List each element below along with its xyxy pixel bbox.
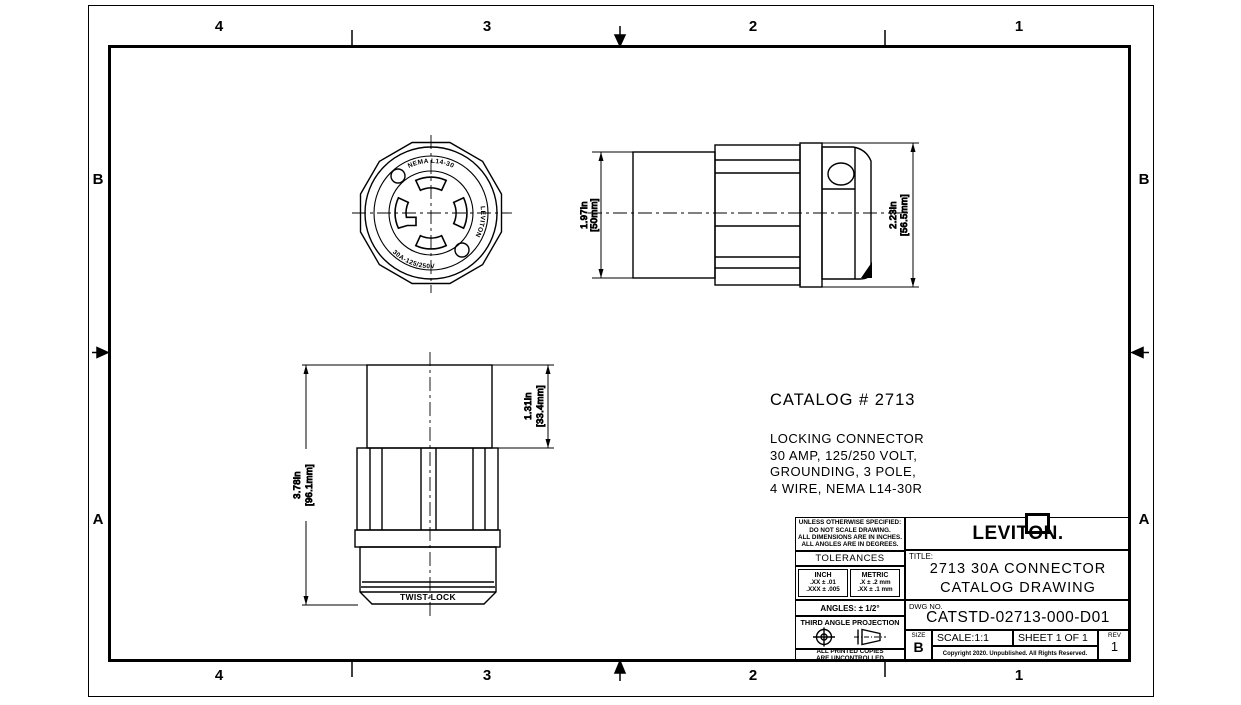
dim-cord-sleeve-length-in: 1.31in <box>523 392 534 420</box>
angles-cell: ANGLES: ± 1/2° <box>795 600 905 616</box>
third-angle-projection-icon <box>796 627 903 648</box>
tolerances-header-cell: TOLERANCES <box>795 551 905 566</box>
copyright-cell: Copyright 2020. Unpublished. All Rights … <box>932 646 1098 662</box>
face-hole-upper <box>391 169 405 183</box>
catalog-description: LOCKING CONNECTOR 30 AMP, 125/250 VOLT, … <box>770 431 924 497</box>
center-arrow-right <box>1132 348 1143 358</box>
center-arrow-bottom <box>615 661 625 673</box>
dwg-no-label: DWG NO. <box>909 602 943 611</box>
title-cell: TITLE: 2713 30A CONNECTOR CATALOG DRAWIN… <box>905 550 1131 600</box>
projection-label: THIRD ANGLE PROJECTION <box>796 618 904 627</box>
dim-overall-length-in: 3.78in <box>292 471 303 499</box>
note-line: DO NOT SCALE DRAWING. <box>809 527 891 534</box>
size-value: B <box>906 639 931 655</box>
dim-overall-od-in: 2.23in <box>888 201 899 229</box>
dwg-no-value: CATSTD-02713-000-D01 <box>906 609 1130 627</box>
metric-row: .XX ± .1 mm <box>857 586 892 593</box>
size-label: SIZE <box>906 632 931 639</box>
dim-cord-sleeve-length-mm: [33.4mm] <box>535 385 546 427</box>
dim-overall-length: 3.78in [96.1mm] <box>292 365 367 605</box>
side-cord-sleeve <box>633 152 715 278</box>
catalog-heading: CATALOG # 2713 <box>770 391 924 410</box>
sheet-cell: SHEET 1 OF 1 <box>1013 630 1098 646</box>
dim-overall-od-mm: [56.5mm] <box>899 194 910 236</box>
center-arrow-left <box>97 348 108 358</box>
side-flange <box>800 143 822 287</box>
metric-header: METRIC <box>862 572 889 579</box>
body-marking-text: TWIST-LOCK <box>400 592 456 602</box>
bottom-ribbed-body <box>357 448 498 530</box>
inch-row: .XX ± .01 <box>810 579 836 586</box>
bottom-cord-sleeve <box>367 365 492 448</box>
leviton-logo: LEVITON. <box>972 523 1063 545</box>
rev-cell: REV 1 <box>1098 630 1131 662</box>
dim-overall-length-mm: [96.1mm] <box>304 464 315 506</box>
side-view: 1.97in [50mm] 2.23in [56.5mm] <box>579 143 919 287</box>
projection-cell: THIRD ANGLE PROJECTION <box>795 616 905 649</box>
catalog-description-line: GROUNDING, 3 POLE, <box>770 464 924 481</box>
note-line: ALL ANGLES ARE IN DEGREES. <box>801 541 898 548</box>
catalog-description-line: 4 WIRE, NEMA L14-30R <box>770 481 924 498</box>
size-cell: SIZE B <box>905 630 932 662</box>
front-view: NEMA L14-30 LEVITON 30A-125/250V <box>352 135 512 293</box>
bottom-flange <box>355 530 500 547</box>
drawing-sheet: 4 3 2 1 4 3 2 1 B A B A <box>0 0 1241 705</box>
dim-sleeve-od: 1.97in [50mm] <box>579 152 633 278</box>
title-line-1: 2713 30A CONNECTOR <box>906 560 1130 579</box>
title-line-2: CATALOG DRAWING <box>906 579 1130 598</box>
notes-cell: UNLESS OTHERWISE SPECIFIED: DO NOT SCALE… <box>795 517 905 551</box>
dim-cord-sleeve-length: 1.31in [33.4mm] <box>492 365 554 448</box>
title-label: TITLE: <box>909 552 933 561</box>
catalog-block: CATALOG # 2713 LOCKING CONNECTOR 30 AMP,… <box>770 391 924 497</box>
logo-cell: LEVITON. <box>905 517 1131 550</box>
metric-row: .X ± .2 mm <box>859 579 890 586</box>
metric-tolerance-box: METRIC .X ± .2 mm .XX ± .1 mm <box>850 569 900 597</box>
note-line: ALL DIMENSIONS ARE IN INCHES. <box>798 534 902 541</box>
center-arrow-top <box>615 35 625 46</box>
drawing-title: 2713 30A CONNECTOR CATALOG DRAWING <box>906 560 1130 598</box>
dim-sleeve-od-mm: [50mm] <box>589 198 600 231</box>
inch-row: .XXX ± .005 <box>806 586 840 593</box>
inch-header: INCH <box>814 572 831 579</box>
tolerances-body-cell: INCH .XX ± .01 .XXX ± .005 METRIC .X ± .… <box>795 566 905 600</box>
side-face-hole <box>828 163 854 185</box>
face-marking-bottom: 30A-125/250V <box>391 249 435 270</box>
uncontrolled-cell: ALL PRINTED COPIES ARE UNCONTROLLED <box>795 649 905 662</box>
dwg-no-cell: DWG NO. CATSTD-02713-000-D01 <box>905 600 1131 630</box>
catalog-description-line: LOCKING CONNECTOR <box>770 431 924 448</box>
rev-label: REV <box>1099 632 1130 639</box>
leviton-logo-text: LEVITON. <box>972 523 1063 544</box>
bottom-view: TWIST-LOCK 3.78in [96.1mm] 1.31in [33.4m… <box>292 352 554 618</box>
catalog-description-line: 30 AMP, 125/250 VOLT, <box>770 448 924 465</box>
face-hole-lower <box>455 243 469 257</box>
inch-tolerance-box: INCH .XX ± .01 .XXX ± .005 <box>798 569 848 597</box>
scale-cell: SCALE:1:1 <box>932 630 1013 646</box>
side-ribbed-body <box>715 145 800 285</box>
note-line: UNLESS OTHERWISE SPECIFIED: <box>799 519 901 526</box>
uncontrolled-line: ARE UNCONTROLLED <box>816 656 884 663</box>
dim-overall-od: 2.23in [56.5mm] <box>812 143 919 287</box>
rev-value: 1 <box>1099 639 1130 654</box>
